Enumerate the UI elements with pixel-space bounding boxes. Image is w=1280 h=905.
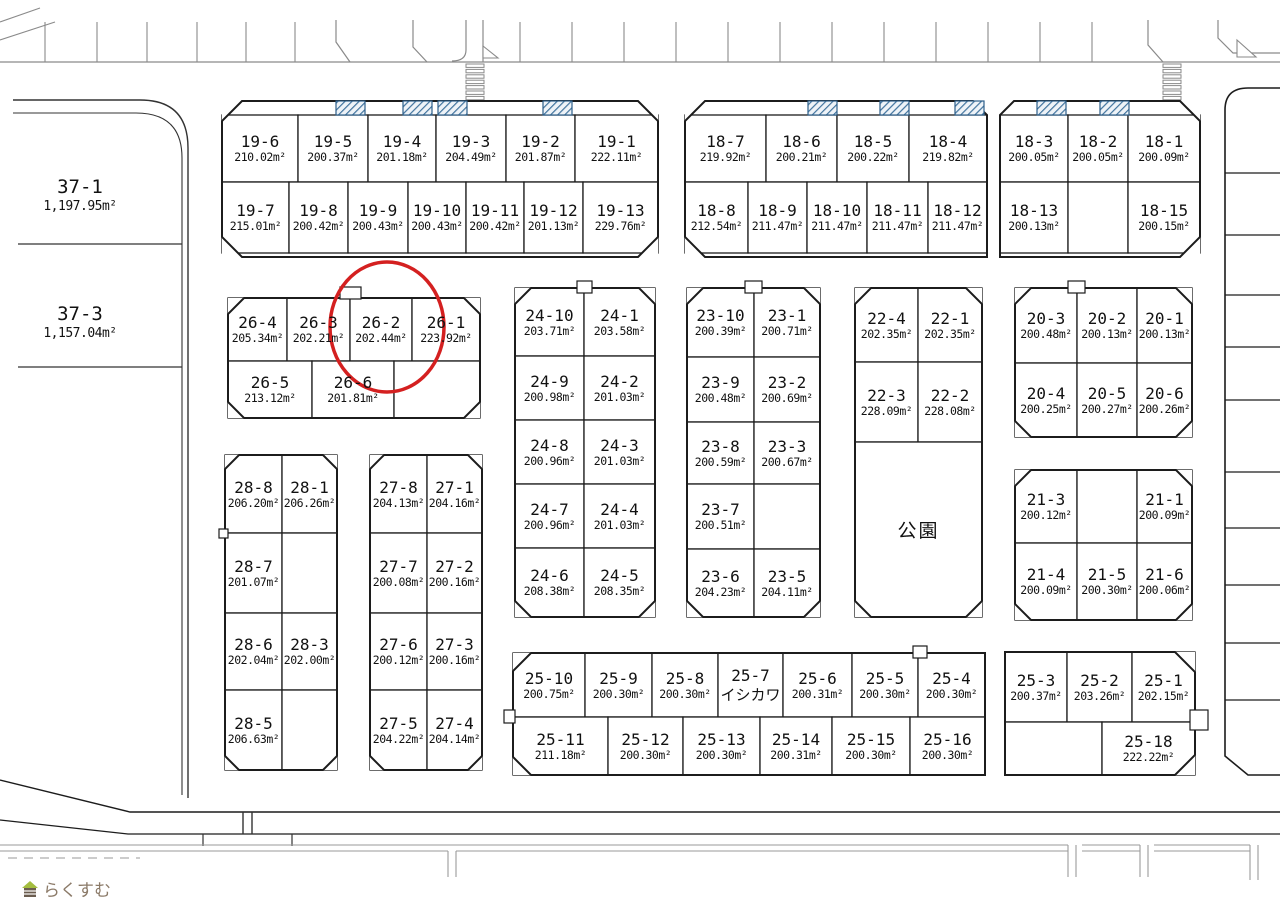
lot-area: 222.11m² bbox=[591, 151, 642, 165]
lot-19-13[interactable]: 19-13229.76m² bbox=[583, 182, 658, 253]
lot-label: 22-2 bbox=[931, 386, 970, 405]
lot-23-9[interactable]: 23-9200.48m² bbox=[687, 357, 754, 422]
lot-area: 203.58m² bbox=[594, 325, 645, 339]
road-line bbox=[0, 8, 55, 40]
lot-25-15[interactable]: 25-15200.30m² bbox=[832, 717, 910, 775]
lot-area: 200.15m² bbox=[1138, 220, 1189, 234]
road-corner-flag bbox=[1237, 40, 1256, 57]
lot-area: 200.16m² bbox=[429, 576, 480, 590]
hatch-marker bbox=[880, 101, 909, 115]
lot-label: 22-4 bbox=[867, 309, 906, 328]
lot-area: 200.71m² bbox=[761, 325, 812, 339]
lot-21-1[interactable]: 21-1200.09m² bbox=[1137, 470, 1192, 543]
lot-label: 19-1 bbox=[597, 132, 636, 151]
lot-label: 18-13 bbox=[1010, 201, 1058, 220]
house-icon bbox=[22, 881, 38, 897]
lot-area: 200.30m² bbox=[620, 749, 671, 763]
lot-label: 19-2 bbox=[521, 132, 560, 151]
lot-area: 204.16m² bbox=[429, 497, 480, 511]
lot-18-4[interactable]: 18-4219.82m² bbox=[909, 115, 987, 182]
lot-label: 26-2 bbox=[362, 313, 401, 332]
crosswalk-icon bbox=[1163, 96, 1181, 99]
lot-area: 201.03m² bbox=[594, 455, 645, 469]
lot-23-3[interactable]: 23-3200.67m² bbox=[754, 422, 820, 484]
lot-18-6[interactable]: 18-6200.21m² bbox=[766, 115, 837, 182]
lot-25-12[interactable]: 25-12200.30m² bbox=[608, 717, 683, 775]
lot-label: 21-1 bbox=[1145, 490, 1184, 509]
lot-label: 18-15 bbox=[1140, 201, 1188, 220]
lot-27-8[interactable]: 27-8204.13m² bbox=[370, 455, 427, 533]
lot-area: 200.67m² bbox=[761, 456, 812, 470]
lot-28-6[interactable]: 28-6202.04m² bbox=[225, 613, 282, 690]
hatch-marker bbox=[1100, 101, 1129, 115]
lot-label: 19-6 bbox=[241, 132, 280, 151]
lot-label: 28-6 bbox=[234, 635, 273, 654]
lot-21-4[interactable]: 21-4200.09m² bbox=[1015, 543, 1077, 620]
lot-23-8[interactable]: 23-8200.59m² bbox=[687, 422, 754, 484]
lot-boundary bbox=[1005, 722, 1102, 775]
lot-area: 200.13m² bbox=[1008, 220, 1059, 234]
road-line bbox=[413, 20, 427, 62]
logo-text: らくすむ bbox=[43, 876, 111, 901]
lot-27-4[interactable]: 27-4204.14m² bbox=[427, 690, 482, 770]
lot-22-3[interactable]: 22-3228.09m² bbox=[855, 362, 918, 442]
crosswalk-icon bbox=[466, 64, 484, 67]
lot-area: 206.26m² bbox=[284, 497, 335, 511]
lot-area: 200.43m² bbox=[352, 220, 403, 234]
lot-area: 200.48m² bbox=[695, 392, 746, 406]
lot-26-3[interactable]: 26-3202.21m² bbox=[287, 298, 350, 361]
lot-27-1[interactable]: 27-1204.16m² bbox=[427, 455, 482, 533]
lot-area: 228.08m² bbox=[924, 405, 975, 419]
hatch-marker bbox=[955, 101, 984, 115]
lot-area: 200.39m² bbox=[695, 325, 746, 339]
lot-19-10[interactable]: 19-10200.43m² bbox=[408, 182, 466, 253]
lot-area: 222.22m² bbox=[1123, 751, 1174, 765]
lot-label: 27-8 bbox=[379, 478, 418, 497]
lot-24-2[interactable]: 24-2201.03m² bbox=[584, 356, 655, 420]
lot-area: 204.22m² bbox=[373, 733, 424, 747]
road-line bbox=[1225, 88, 1280, 775]
lot-area: 228.09m² bbox=[861, 405, 912, 419]
lot-label: 25-13 bbox=[697, 730, 745, 749]
lot-label: 23-2 bbox=[768, 373, 807, 392]
lot-label: 28-5 bbox=[234, 714, 273, 733]
lot-label: 26-3 bbox=[299, 313, 338, 332]
lot-19-3[interactable]: 19-3204.49m² bbox=[436, 115, 506, 182]
lot-area: 200.98m² bbox=[524, 391, 575, 405]
lot-label: 18-7 bbox=[706, 132, 745, 151]
lot-area: 229.76m² bbox=[595, 220, 646, 234]
lot-23-2[interactable]: 23-2200.69m² bbox=[754, 357, 820, 422]
lot-area: 200.96m² bbox=[524, 455, 575, 469]
lot-25-13[interactable]: 25-13200.30m² bbox=[683, 717, 760, 775]
lot-label: 19-5 bbox=[314, 132, 353, 151]
lot-area: 200.16m² bbox=[429, 654, 480, 668]
lot-28-8[interactable]: 28-8206.20m² bbox=[225, 455, 282, 533]
crosswalk-icon bbox=[466, 91, 484, 94]
lot-label: 25-4 bbox=[932, 669, 971, 688]
road-line bbox=[243, 812, 252, 834]
lot-label: 25-1 bbox=[1144, 671, 1183, 690]
lot-label: 20-5 bbox=[1088, 384, 1127, 403]
lot-24-10[interactable]: 24-10203.71m² bbox=[515, 288, 584, 356]
hatch-marker bbox=[438, 101, 467, 115]
lot-19-8[interactable]: 19-8200.42m² bbox=[289, 182, 348, 253]
lot-label: 21-6 bbox=[1145, 565, 1184, 584]
site-logo: らくすむ bbox=[22, 876, 111, 901]
lot-label: 18-12 bbox=[933, 201, 981, 220]
lot-24-3[interactable]: 24-3201.03m² bbox=[584, 420, 655, 484]
lot-label: 19-9 bbox=[359, 201, 398, 220]
lot-boundary bbox=[282, 690, 337, 770]
hatch-marker bbox=[543, 101, 572, 115]
lot-area: 200.48m² bbox=[1020, 328, 1071, 342]
lot-area: 200.21m² bbox=[776, 151, 827, 165]
lot-25-14[interactable]: 25-14200.31m² bbox=[760, 717, 832, 775]
lot-20-1[interactable]: 20-1200.13m² bbox=[1137, 288, 1192, 363]
road-line bbox=[203, 834, 292, 846]
hatch-marker bbox=[403, 101, 432, 115]
lot-18-11[interactable]: 18-11211.47m² bbox=[867, 182, 928, 253]
lot-label: 23-6 bbox=[701, 567, 740, 586]
lot-25-8[interactable]: 25-8200.30m² bbox=[652, 653, 718, 717]
lot-area: 204.14m² bbox=[429, 733, 480, 747]
lot-19-7[interactable]: 19-7215.01m² bbox=[222, 182, 289, 253]
lot-label: 24-10 bbox=[525, 306, 573, 325]
lot-area: 204.13m² bbox=[373, 497, 424, 511]
lot-26-6[interactable]: 26-6201.81m² bbox=[312, 361, 394, 418]
lot-label: 24-5 bbox=[600, 566, 639, 585]
lot-area: 206.20m² bbox=[228, 497, 279, 511]
lot-24-7[interactable]: 24-7200.96m² bbox=[515, 484, 584, 548]
lot-label: 18-3 bbox=[1015, 132, 1054, 151]
lot-28-1[interactable]: 28-1206.26m² bbox=[282, 455, 337, 533]
lot-area: 200.12m² bbox=[1020, 509, 1071, 523]
lot-20-6[interactable]: 20-6200.26m² bbox=[1137, 363, 1192, 437]
lot-area: 200.51m² bbox=[695, 519, 746, 533]
lot-label: 27-3 bbox=[435, 635, 474, 654]
lot-19-6[interactable]: 19-6210.02m² bbox=[222, 115, 298, 182]
lot-label: 20-4 bbox=[1027, 384, 1066, 403]
lot-19-4[interactable]: 19-4201.18m² bbox=[368, 115, 436, 182]
lot-area: 200.30m² bbox=[593, 688, 644, 702]
road-line bbox=[1218, 20, 1280, 53]
lot-label: 21-3 bbox=[1027, 490, 1066, 509]
lot-area: 204.11m² bbox=[761, 586, 812, 600]
lot-area: 200.13m² bbox=[1139, 328, 1190, 342]
lot-label: 27-7 bbox=[379, 557, 418, 576]
lot-area: 200.09m² bbox=[1139, 509, 1190, 523]
lot-area: 211.47m² bbox=[811, 220, 862, 234]
lot-26-4[interactable]: 26-4205.34m² bbox=[228, 298, 287, 361]
lot-area: 200.31m² bbox=[792, 688, 843, 702]
lot-24-4[interactable]: 24-4201.03m² bbox=[584, 484, 655, 548]
lot-area: 208.35m² bbox=[594, 585, 645, 599]
lot-label: 19-8 bbox=[299, 201, 338, 220]
lot-area: 211.18m² bbox=[535, 749, 586, 763]
lot-19-12[interactable]: 19-12201.13m² bbox=[524, 182, 583, 253]
lot-25-10[interactable]: 25-10200.75m² bbox=[513, 653, 585, 717]
lot-19-5[interactable]: 19-5200.37m² bbox=[298, 115, 368, 182]
lot-label: 18-5 bbox=[854, 132, 893, 151]
lot-label: 25-8 bbox=[666, 669, 705, 688]
lot-area: 215.01m² bbox=[230, 220, 281, 234]
lot-area: 200.25m² bbox=[1020, 403, 1071, 417]
lot-27-2[interactable]: 27-2200.16m² bbox=[427, 533, 482, 613]
lot-area: 210.02m² bbox=[234, 151, 285, 165]
lot-area: 200.30m² bbox=[859, 688, 910, 702]
lot-area: 200.37m² bbox=[307, 151, 358, 165]
lot-area: 200.37m² bbox=[1010, 690, 1061, 704]
lot-area: 219.92m² bbox=[700, 151, 751, 165]
lot-label: 37-1 bbox=[57, 176, 103, 199]
crosswalk-icon bbox=[466, 80, 484, 83]
lot-label: 20-6 bbox=[1145, 384, 1184, 403]
road-line bbox=[0, 820, 1280, 834]
lot-area: 208.38m² bbox=[524, 585, 575, 599]
lot-18-3[interactable]: 18-3200.05m² bbox=[1000, 115, 1068, 182]
hatch-marker bbox=[1037, 101, 1066, 115]
lot-23-1[interactable]: 23-1200.71m² bbox=[754, 288, 820, 357]
crosswalk-icon bbox=[1163, 91, 1181, 94]
lot-area: 200.13m² bbox=[1081, 328, 1132, 342]
lot-area: 202.44m² bbox=[355, 332, 406, 346]
lot-20-4[interactable]: 20-4200.25m² bbox=[1015, 363, 1077, 437]
lot-label: 19-10 bbox=[413, 201, 461, 220]
lot-label: 25-16 bbox=[923, 730, 971, 749]
lot-label: 18-10 bbox=[813, 201, 861, 220]
lot-25-6[interactable]: 25-6200.31m² bbox=[783, 653, 852, 717]
lot-area: 201.81m² bbox=[327, 392, 378, 406]
lot-18-8[interactable]: 18-8212.54m² bbox=[685, 182, 748, 253]
lot-area: 204.23m² bbox=[695, 586, 746, 600]
lot-25-5[interactable]: 25-5200.30m² bbox=[852, 653, 918, 717]
lot-27-7[interactable]: 27-7200.08m² bbox=[370, 533, 427, 613]
lot-label: 21-4 bbox=[1027, 565, 1066, 584]
lot-25-11[interactable]: 25-11211.18m² bbox=[513, 717, 608, 775]
lot-18-13[interactable]: 18-13200.13m² bbox=[1000, 182, 1068, 253]
lot-area: 200.26m² bbox=[1139, 403, 1190, 417]
lot-18-1[interactable]: 18-1200.09m² bbox=[1128, 115, 1200, 182]
lot-18-15[interactable]: 18-15200.15m² bbox=[1128, 182, 1200, 253]
lot-area: 1,157.04m² bbox=[43, 326, 116, 342]
lot-25-4[interactable]: 25-4200.30m² bbox=[918, 653, 985, 717]
lot-27-6[interactable]: 27-6200.12m² bbox=[370, 613, 427, 690]
lot-25-16[interactable]: 25-16200.30m² bbox=[910, 717, 985, 775]
lot-label: 22-3 bbox=[867, 386, 906, 405]
lot-area: 202.35m² bbox=[924, 328, 975, 342]
lot-20-2[interactable]: 20-2200.13m² bbox=[1077, 288, 1137, 363]
hatch-marker bbox=[336, 101, 365, 115]
lot-25-7[interactable]: 25-7イシカワ bbox=[718, 653, 783, 717]
lot-label: 28-7 bbox=[234, 557, 273, 576]
lot-21-5[interactable]: 21-5200.30m² bbox=[1077, 543, 1137, 620]
lot-26-1[interactable]: 26-1223.92m² bbox=[412, 298, 480, 361]
lot-area: 200.22m² bbox=[847, 151, 898, 165]
lot-label: 24-1 bbox=[600, 306, 639, 325]
lot-label: 25-9 bbox=[599, 669, 638, 688]
lot-label: 18-4 bbox=[929, 132, 968, 151]
lot-18-5[interactable]: 18-5200.22m² bbox=[837, 115, 909, 182]
lot-25-1[interactable]: 25-1202.15m² bbox=[1132, 652, 1195, 722]
lot-18-2[interactable]: 18-2200.05m² bbox=[1068, 115, 1128, 182]
lot-37-3[interactable]: 37-31,157.04m² bbox=[10, 287, 150, 357]
lot-24-6[interactable]: 24-6208.38m² bbox=[515, 548, 584, 617]
lot-label: 24-6 bbox=[530, 566, 569, 585]
lot-area: 200.42m² bbox=[293, 220, 344, 234]
lot-label: 23-3 bbox=[768, 437, 807, 456]
lot-label: 25-5 bbox=[866, 669, 905, 688]
lot-area: 202.04m² bbox=[228, 654, 279, 668]
lot-18-10[interactable]: 18-10211.47m² bbox=[807, 182, 867, 253]
lot-27-5[interactable]: 27-5204.22m² bbox=[370, 690, 427, 770]
lot-area: 1,197.95m² bbox=[43, 199, 116, 215]
lot-22-2[interactable]: 22-2228.08m² bbox=[918, 362, 982, 442]
lot-label: 25-15 bbox=[847, 730, 895, 749]
lot-label: 26-1 bbox=[427, 313, 466, 332]
lot-label: 28-8 bbox=[234, 478, 273, 497]
lot-area: 200.27m² bbox=[1081, 403, 1132, 417]
lot-27-3[interactable]: 27-3200.16m² bbox=[427, 613, 482, 690]
lot-area: 200.05m² bbox=[1072, 151, 1123, 165]
hatch-marker bbox=[808, 101, 837, 115]
lot-37-1[interactable]: 37-11,197.95m² bbox=[10, 160, 150, 230]
lot-18-9[interactable]: 18-9211.47m² bbox=[748, 182, 807, 253]
lot-area: 200.06m² bbox=[1139, 584, 1190, 598]
lot-25-9[interactable]: 25-9200.30m² bbox=[585, 653, 652, 717]
lot-area: 201.87m² bbox=[515, 151, 566, 165]
lot-23-6[interactable]: 23-6204.23m² bbox=[687, 549, 754, 617]
lot-label: 28-3 bbox=[290, 635, 329, 654]
lot-area: 212.54m² bbox=[691, 220, 742, 234]
lot-area: 201.13m² bbox=[528, 220, 579, 234]
lot-boundary bbox=[282, 533, 337, 613]
lot-label: 18-6 bbox=[782, 132, 821, 151]
lot-area: 200.42m² bbox=[469, 220, 520, 234]
lot-label: 19-12 bbox=[529, 201, 577, 220]
lot-label: 20-1 bbox=[1145, 309, 1184, 328]
crosswalk-icon bbox=[1163, 75, 1181, 78]
lot-area: 201.18m² bbox=[376, 151, 427, 165]
lot-area: 211.47m² bbox=[872, 220, 923, 234]
lot-19-1[interactable]: 19-1222.11m² bbox=[575, 115, 658, 182]
lot-label: 19-3 bbox=[452, 132, 491, 151]
lot-area: 200.96m² bbox=[524, 519, 575, 533]
lot-label: 24-3 bbox=[600, 436, 639, 455]
lot-18-12[interactable]: 18-12211.47m² bbox=[928, 182, 987, 253]
lot-area: 206.63m² bbox=[228, 733, 279, 747]
lot-21-6[interactable]: 21-6200.06m² bbox=[1137, 543, 1192, 620]
lot-28-7[interactable]: 28-7201.07m² bbox=[225, 533, 282, 613]
lot-label: 18-1 bbox=[1145, 132, 1184, 151]
lot-label: 25-12 bbox=[621, 730, 669, 749]
lot-area: 200.05m² bbox=[1008, 151, 1059, 165]
lot-area: 202.00m² bbox=[284, 654, 335, 668]
lot-label: 26-5 bbox=[251, 373, 290, 392]
lot-area: 200.75m² bbox=[523, 688, 574, 702]
park-area: 公園 bbox=[855, 442, 982, 617]
lot-19-9[interactable]: 19-9200.43m² bbox=[348, 182, 408, 253]
lot-label: 23-5 bbox=[768, 567, 807, 586]
lot-label: 24-8 bbox=[530, 436, 569, 455]
lot-21-3[interactable]: 21-3200.12m² bbox=[1015, 470, 1077, 543]
lot-23-10[interactable]: 23-10200.39m² bbox=[687, 288, 754, 357]
crosswalk-icon bbox=[1163, 69, 1181, 72]
lot-area: 200.08m² bbox=[373, 576, 424, 590]
lot-label: 20-2 bbox=[1088, 309, 1127, 328]
crosswalk-icon bbox=[466, 75, 484, 78]
lot-26-2[interactable]: 26-2202.44m² bbox=[350, 298, 412, 361]
lot-area: 202.21m² bbox=[293, 332, 344, 346]
lot-label: 28-1 bbox=[290, 478, 329, 497]
lot-label: 23-8 bbox=[701, 437, 740, 456]
lot-23-5[interactable]: 23-5204.11m² bbox=[754, 549, 820, 617]
lot-28-5[interactable]: 28-5206.63m² bbox=[225, 690, 282, 770]
lot-area: 213.12m² bbox=[244, 392, 295, 406]
crosswalk-icon bbox=[466, 69, 484, 72]
lot-24-5[interactable]: 24-5208.35m² bbox=[584, 548, 655, 617]
lot-label: 24-9 bbox=[530, 372, 569, 391]
lot-25-3[interactable]: 25-3200.37m² bbox=[1005, 652, 1067, 722]
lot-24-1[interactable]: 24-1203.58m² bbox=[584, 288, 655, 356]
lot-label: 25-11 bbox=[536, 730, 584, 749]
lot-label: 22-1 bbox=[931, 309, 970, 328]
lot-23-7[interactable]: 23-7200.51m² bbox=[687, 484, 754, 549]
lot-26-5[interactable]: 26-5213.12m² bbox=[228, 361, 312, 418]
lot-label: 25-10 bbox=[525, 669, 573, 688]
crosswalk-icon bbox=[466, 86, 484, 89]
lot-22-4[interactable]: 22-4202.35m² bbox=[855, 288, 918, 362]
lot-label: 19-7 bbox=[236, 201, 275, 220]
lot-area: 202.15m² bbox=[1138, 690, 1189, 704]
road-line bbox=[1225, 173, 1280, 700]
lot-area: 200.69m² bbox=[761, 392, 812, 406]
lot-boundary bbox=[1068, 182, 1128, 253]
lot-label: 19-4 bbox=[383, 132, 422, 151]
lot-area: 202.35m² bbox=[861, 328, 912, 342]
lot-area: 200.12m² bbox=[373, 654, 424, 668]
crosswalk-icon bbox=[466, 96, 484, 99]
road-line bbox=[0, 780, 1280, 812]
lot-area: 223.92m² bbox=[420, 332, 471, 346]
lot-label: 18-2 bbox=[1079, 132, 1118, 151]
lot-label: 24-2 bbox=[600, 372, 639, 391]
lot-label: 23-9 bbox=[701, 373, 740, 392]
lot-area: 200.59m² bbox=[695, 456, 746, 470]
lot-19-11[interactable]: 19-11200.42m² bbox=[466, 182, 524, 253]
lot-24-9[interactable]: 24-9200.98m² bbox=[515, 356, 584, 420]
lot-label: 24-4 bbox=[600, 500, 639, 519]
lot-24-8[interactable]: 24-8200.96m² bbox=[515, 420, 584, 484]
lot-19-2[interactable]: 19-2201.87m² bbox=[506, 115, 575, 182]
lot-label: 19-11 bbox=[471, 201, 519, 220]
lot-20-5[interactable]: 20-5200.27m² bbox=[1077, 363, 1137, 437]
lot-label: 25-14 bbox=[772, 730, 820, 749]
lot-label: 27-2 bbox=[435, 557, 474, 576]
lot-22-1[interactable]: 22-1202.35m² bbox=[918, 288, 982, 362]
lot-label: 19-13 bbox=[596, 201, 644, 220]
lot-25-18[interactable]: 25-18222.22m² bbox=[1102, 722, 1195, 775]
lot-label: 21-5 bbox=[1088, 565, 1127, 584]
lot-label: 27-4 bbox=[435, 714, 474, 733]
lot-20-3[interactable]: 20-3200.48m² bbox=[1015, 288, 1077, 363]
lot-25-2[interactable]: 25-2203.26m² bbox=[1067, 652, 1132, 722]
crosswalk-icon bbox=[1163, 64, 1181, 67]
lot-28-3[interactable]: 28-3202.00m² bbox=[282, 613, 337, 690]
lot-boundary bbox=[1077, 470, 1137, 543]
lot-18-7[interactable]: 18-7219.92m² bbox=[685, 115, 766, 182]
